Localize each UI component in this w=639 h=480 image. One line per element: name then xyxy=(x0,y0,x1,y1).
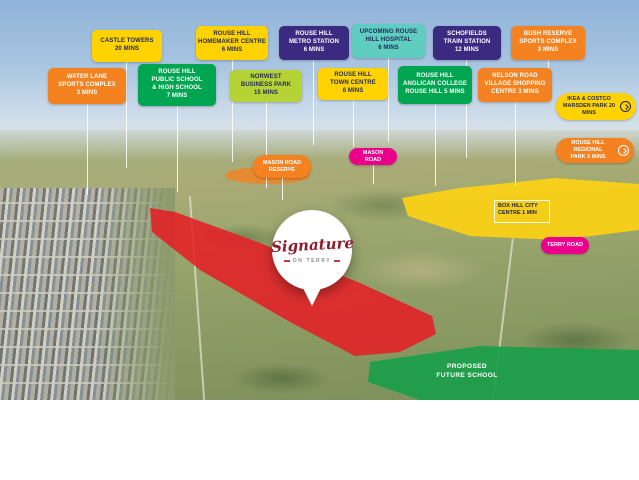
callout-schofields-train-station: SCHOFIELDS TRAIN STATION 12 MINS xyxy=(433,26,501,60)
pill-label: TERRY ROAD xyxy=(546,242,584,249)
site-logo-pin: Signature ON TERRY xyxy=(272,210,352,290)
box-hill-city-centre-label: BOX HILL CITY CENTRE 1 MIN xyxy=(494,200,550,223)
arrow-right-icon xyxy=(618,145,629,156)
callout-label: UPCOMING ROUSE HILL HOSPITAL 6 MINS xyxy=(360,29,417,52)
brand-sub-label: ON TERRY xyxy=(293,258,331,264)
leader-line xyxy=(177,106,178,192)
pill-label: ROUSE HILL REGIONAL PARK 5 MINS xyxy=(561,140,615,161)
callout-label: CASTLE TOWERS 20 MINS xyxy=(100,38,153,54)
pill-label: MASON ROAD xyxy=(354,150,392,164)
pill-mason-road: MASON ROAD xyxy=(349,148,397,165)
proposed-future-school-label: PROPOSED FUTURE SCHOOL xyxy=(434,363,500,381)
leader-line xyxy=(282,178,283,200)
callout-rouse-hill-metro-station: ROUSE HILL METRO STATION 6 MINS xyxy=(279,26,349,60)
callout-rouse-hill-town-centre: ROUSE HILL TOWN CENTRE 6 MINS xyxy=(318,68,388,100)
leader-line xyxy=(388,58,389,142)
leader-line xyxy=(353,100,354,147)
leader-line xyxy=(373,165,374,184)
callout-label: ROUSE HILL PUBLIC SCHOOL & HIGH SCHOOL 7… xyxy=(152,69,203,100)
callout-label: NELSON ROAD VILLAGE SHOPPING CENTRE 3 MI… xyxy=(485,73,546,96)
callout-castle-towers: CASTLE TOWERS 20 MINS xyxy=(92,30,162,62)
arrow-right-icon xyxy=(620,101,631,112)
leader-line xyxy=(313,60,314,145)
callout-label: ROUSE HILL TOWN CENTRE 6 MINS xyxy=(330,72,376,95)
leader-line xyxy=(435,104,436,186)
callout-label: WATER LANE SPORTS COMPLEX 3 MINS xyxy=(58,74,115,97)
callout-label: NORWEST BUSINESS PARK 15 MINS xyxy=(241,74,291,97)
red-dash-icon xyxy=(334,260,340,262)
callout-label: SCHOFIELDS TRAIN STATION 12 MINS xyxy=(444,31,491,54)
callout-norwest-business-park: NORWEST BUSINESS PARK 15 MINS xyxy=(230,70,302,102)
callout-rouse-hill-homemaker-centre: ROUSE HILL HOMEMAKER CENTRE 6 MINS xyxy=(196,26,268,60)
leader-line xyxy=(87,104,88,195)
pill-mason-road-reserve: MASON ROAD RESERVE xyxy=(253,155,311,178)
callout-nelson-road-village-shopping: NELSON ROAD VILLAGE SHOPPING CENTRE 3 MI… xyxy=(478,68,552,102)
callout-rouse-hill-anglican-college: ROUSE HILL ANGLICAN COLLEGE ROUSE HILL 5… xyxy=(398,66,472,104)
callout-bush-reserve-sports-complex: BUSH RESERVE SPORTS COMPLEX 3 MINS xyxy=(511,26,585,60)
callout-label: ROUSE HILL METRO STATION 6 MINS xyxy=(289,31,339,54)
callout-label: ROUSE HILL ANGLICAN COLLEGE ROUSE HILL 5… xyxy=(403,73,467,96)
callout-rouse-hill-public-school: ROUSE HILL PUBLIC SCHOOL & HIGH SCHOOL 7… xyxy=(138,64,216,106)
callout-label: ROUSE HILL HOMEMAKER CENTRE 6 MINS xyxy=(198,31,266,54)
callout-label: BUSH RESERVE SPORTS COMPLEX 3 MINS xyxy=(519,31,576,54)
pill-label: IKEA & COSTCO MARSDEN PARK 20 MINS xyxy=(561,96,617,117)
pill-terry-road: TERRY ROAD xyxy=(541,237,589,254)
legend: LOCATION MAP SITE SCHOOLS BUSINESS / IND… xyxy=(0,400,639,480)
aerial-photo: CASTLE TOWERS 20 MINS ROUSE HILL HOMEMAK… xyxy=(0,0,639,400)
pill-rouse-hill-regional-park[interactable]: ROUSE HILL REGIONAL PARK 5 MINS xyxy=(556,138,634,163)
leader-line xyxy=(126,62,127,168)
suburb-houses xyxy=(0,188,175,400)
brand-script-logo: Signature xyxy=(270,234,354,256)
pill-label: MASON ROAD RESERVE xyxy=(258,160,306,174)
horizon-haze xyxy=(0,126,639,160)
location-map-page: CASTLE TOWERS 20 MINS ROUSE HILL HOMEMAK… xyxy=(0,0,639,480)
red-dash-icon xyxy=(284,260,290,262)
callout-upcoming-rouse-hill-hospital: UPCOMING ROUSE HILL HOSPITAL 6 MINS xyxy=(352,24,425,58)
callout-water-lane-sports-complex: WATER LANE SPORTS COMPLEX 3 MINS xyxy=(48,68,126,104)
pill-ikea-costco[interactable]: IKEA & COSTCO MARSDEN PARK 20 MINS xyxy=(556,93,636,120)
leader-line xyxy=(515,102,516,186)
